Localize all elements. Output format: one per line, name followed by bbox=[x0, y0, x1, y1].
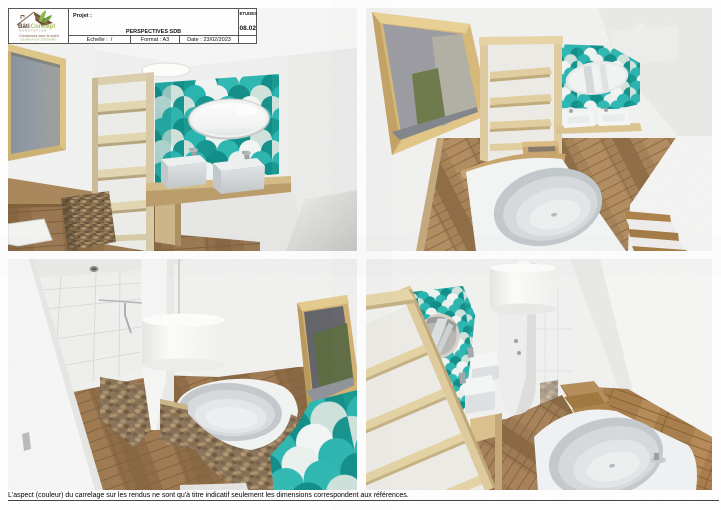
svg-text:SOLAIRE POUR CONSTRUIRE: SOLAIRE POUR CONSTRUIRE bbox=[20, 39, 56, 42]
svg-text:RENOVATION: RENOVATION bbox=[19, 30, 47, 33]
svg-text:Construisez avec le soleil: Construisez avec le soleil bbox=[19, 34, 59, 38]
